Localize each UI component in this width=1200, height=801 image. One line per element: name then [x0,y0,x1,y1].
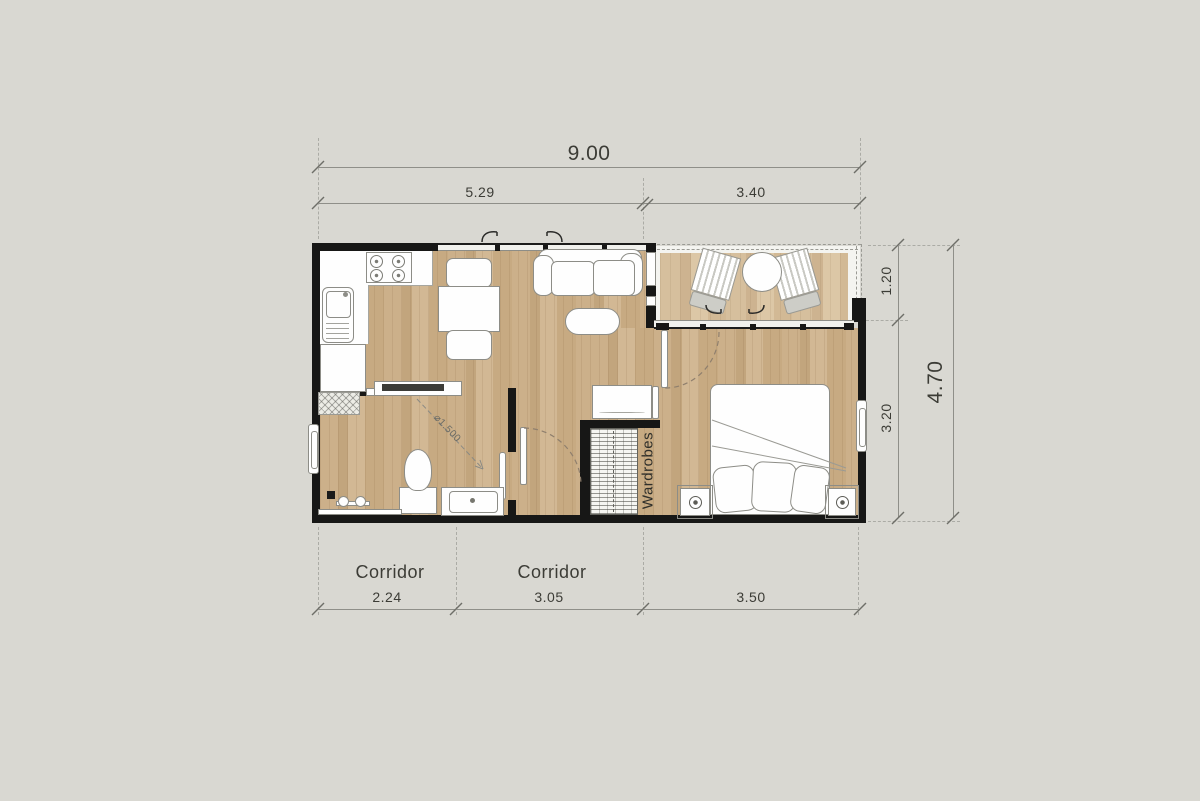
dim-label-bottom-left: 2.24 [347,589,427,605]
bed-fold-lines [712,420,846,471]
floor-plan: 9.00 5.29 3.40 2.24 3.05 3.50 Corridor C… [0,0,1200,801]
dim-label-bottom-right: 3.50 [711,589,791,605]
corridor-label-left: Corridor [330,562,450,583]
window-opening-marks [482,232,764,313]
dim-label-top-total: 9.00 [549,142,629,166]
dim-label-right-total: 4.70 [924,342,948,422]
dim-label-top-right: 3.40 [711,184,791,200]
plan-annotations [0,0,1200,801]
corridor-label-middle: Corridor [492,562,612,583]
dimension-ticks [312,161,959,615]
hall-door-swing [524,428,581,485]
dim-label-bottom-middle: 3.05 [509,589,589,605]
door-swing-arcs [524,332,719,485]
dim-label-right-upper: 1.20 [878,241,894,321]
wardrobes-label: Wardrobes [640,421,657,521]
dim-label-top-left: 5.29 [440,184,520,200]
bedroom-door-swing [665,332,719,388]
dim-label-right-lower: 3.20 [878,378,894,458]
